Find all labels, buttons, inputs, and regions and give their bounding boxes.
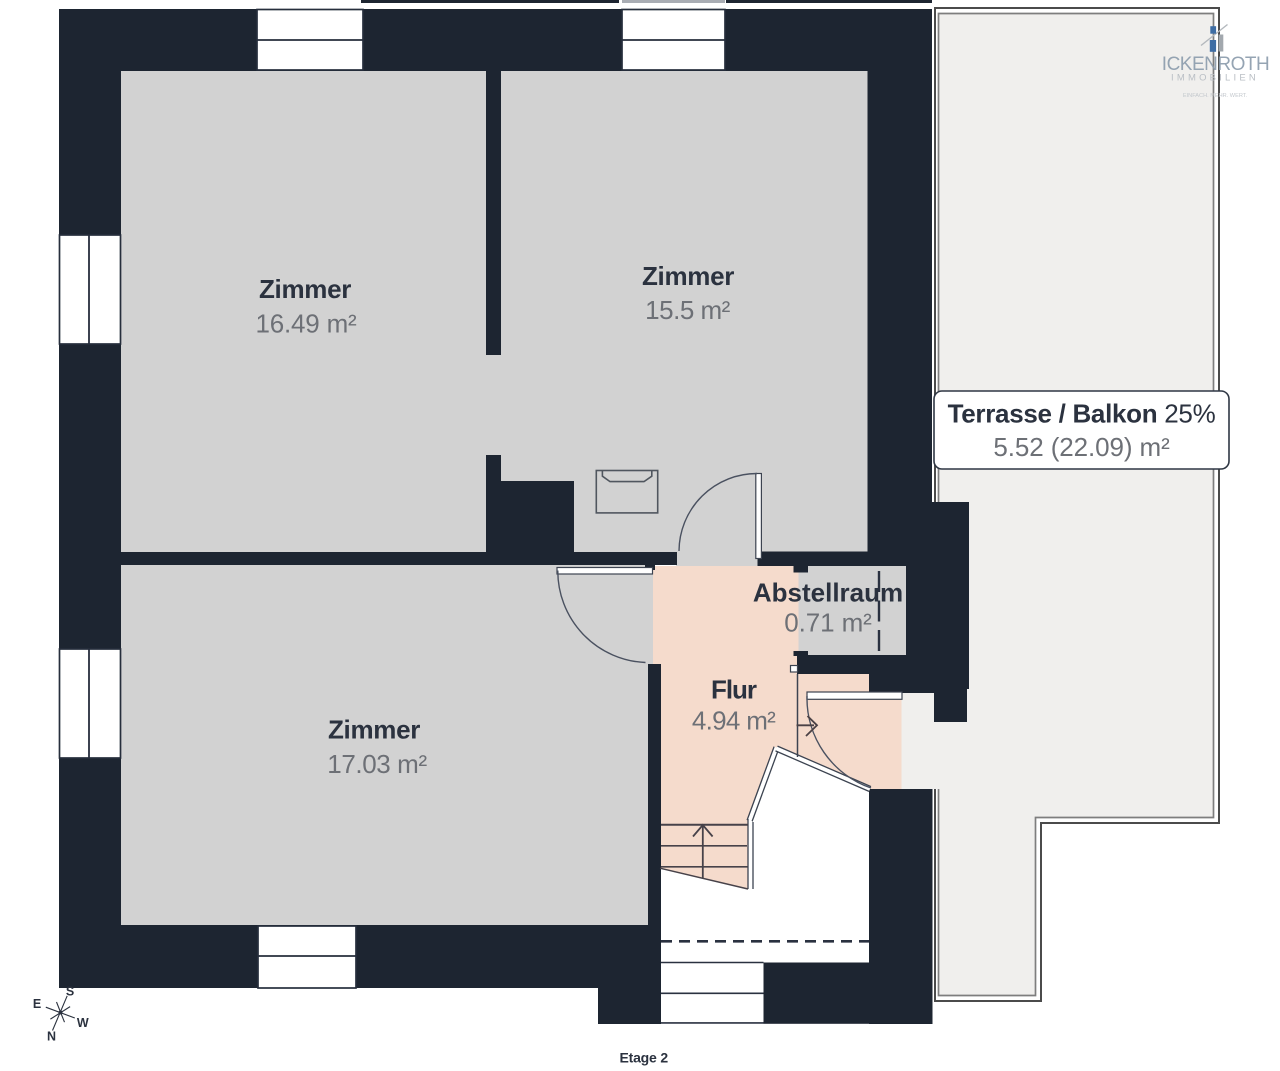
svg-text:16.49 m²: 16.49 m² <box>255 309 357 339</box>
svg-text:Zimmer: Zimmer <box>642 261 734 291</box>
svg-text:S: S <box>66 985 74 999</box>
svg-text:Flur: Flur <box>711 675 757 705</box>
svg-text:Etage 2: Etage 2 <box>620 1050 669 1066</box>
svg-text:IMMOBILIEN: IMMOBILIEN <box>1171 73 1259 84</box>
svg-text:17.03 m²: 17.03 m² <box>327 749 427 779</box>
svg-text:N: N <box>47 1029 56 1043</box>
svg-text:5.52 (22.09) m²: 5.52 (22.09) m² <box>993 432 1170 462</box>
svg-text:Zimmer: Zimmer <box>259 274 351 304</box>
svg-text:0.71 m²: 0.71 m² <box>784 608 872 638</box>
svg-text:15.5 m²: 15.5 m² <box>645 295 730 325</box>
svg-text:W: W <box>77 1016 89 1030</box>
svg-text:4.94 m²: 4.94 m² <box>692 706 776 736</box>
svg-text:EINFACH. MEHR. WERT.: EINFACH. MEHR. WERT. <box>1183 93 1248 99</box>
svg-text:Zimmer: Zimmer <box>328 715 420 745</box>
svg-text:E: E <box>33 997 41 1011</box>
svg-text:Terrasse / Balkon 25%: Terrasse / Balkon 25% <box>948 399 1216 429</box>
svg-text:Abstellraum: Abstellraum <box>753 578 903 608</box>
